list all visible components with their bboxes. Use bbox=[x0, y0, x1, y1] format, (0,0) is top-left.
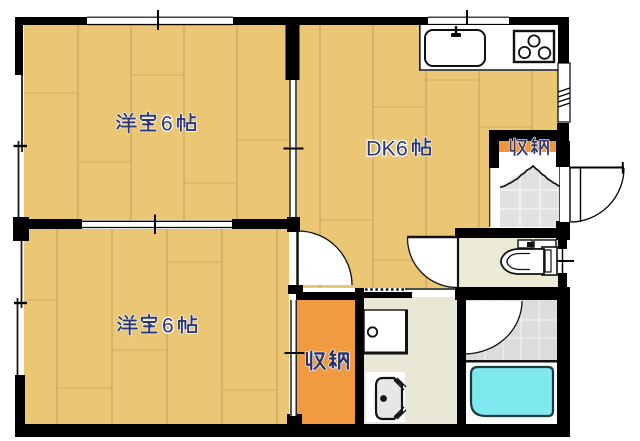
svg-text:6: 6 bbox=[162, 315, 174, 338]
svg-text:6: 6 bbox=[161, 113, 173, 136]
svg-text:DK6: DK6 bbox=[366, 137, 408, 161]
